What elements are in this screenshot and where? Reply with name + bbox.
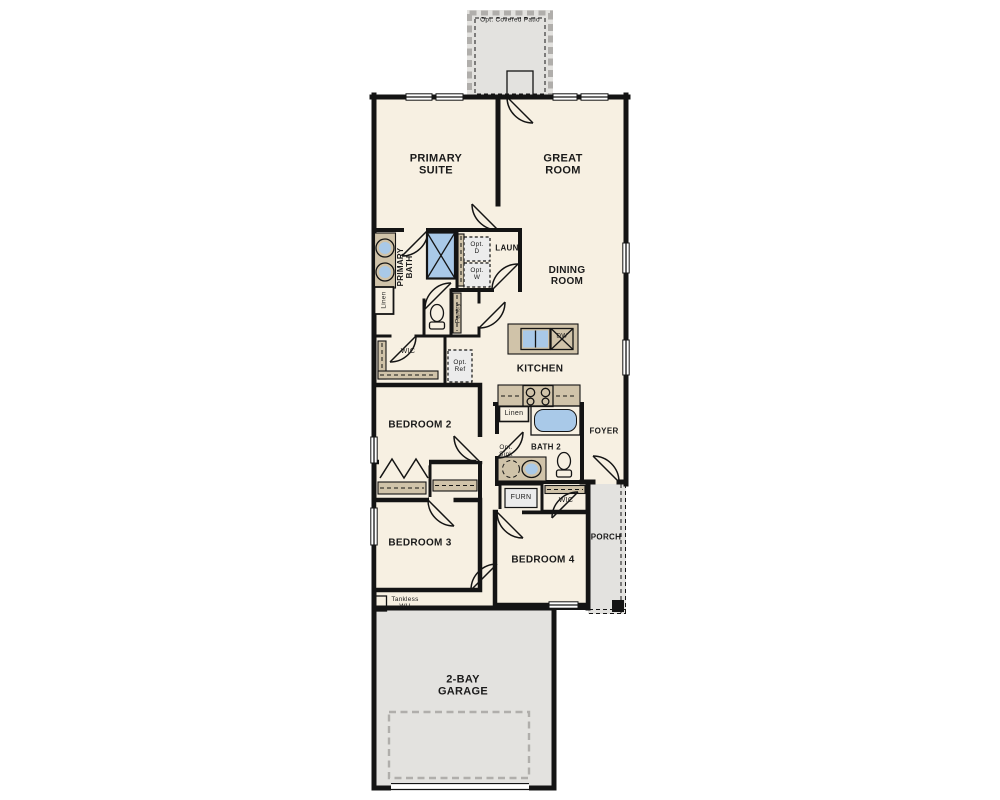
bath2-label: BATH 2 (523, 444, 569, 453)
primary-suite-label: PRIMARY SUITE (395, 153, 477, 178)
window (553, 94, 577, 100)
opt-ref-label: Opt. Ref (449, 359, 471, 373)
bedroom3-label: BEDROOM 3 (372, 537, 468, 548)
tankless-label: Tankless WH (385, 596, 425, 610)
wic4-shelf (545, 486, 585, 494)
pantry-label: Pantry (454, 298, 461, 328)
shower (427, 233, 455, 279)
dining-room-label: DINING ROOM (541, 265, 593, 287)
furnace-label: FURN (504, 494, 538, 502)
window (623, 243, 629, 273)
window (436, 94, 463, 100)
laundry-label: LAUN (487, 245, 527, 254)
double-vanity (375, 233, 396, 288)
opt-dryer-label: Opt. D (467, 241, 487, 255)
great-room-label: GREAT ROOM (531, 153, 595, 178)
opt-sink-label: Opt. Sink (494, 444, 518, 458)
wic-primary-label: WIC (391, 348, 425, 356)
window (406, 94, 432, 100)
linen-bath2-label: Linen (499, 410, 529, 418)
porch-label: PORCH (584, 534, 628, 543)
garage-area (374, 608, 554, 791)
floor-plan: Opt. Covered Patio PRIMARY SUITE GREAT R… (0, 0, 1000, 800)
porch-post (612, 600, 624, 612)
window (371, 437, 377, 463)
garage-label: 2-BAY GARAGE (427, 674, 499, 699)
floor-plan-drawing (0, 0, 1000, 800)
patio-label: Opt. Covered Patio (468, 16, 552, 23)
dishwasher-label: DW (552, 332, 572, 339)
porch-area (588, 484, 626, 614)
kitchen-label: KITCHEN (505, 363, 575, 374)
bedroom4-label: BEDROOM 4 (495, 554, 591, 565)
bedroom2-label: BEDROOM 2 (372, 419, 468, 430)
wic-bedroom4-label: WIC (551, 497, 581, 505)
foyer-label: FOYER (582, 428, 626, 437)
opt-washer-label: Opt. W (467, 267, 487, 281)
window (549, 602, 578, 608)
island-sink (521, 329, 550, 350)
primary-bath-label: PRIMARY BATH (397, 238, 415, 296)
window (581, 94, 608, 100)
window (623, 340, 629, 375)
linen-primary-label: Linen (380, 287, 387, 313)
